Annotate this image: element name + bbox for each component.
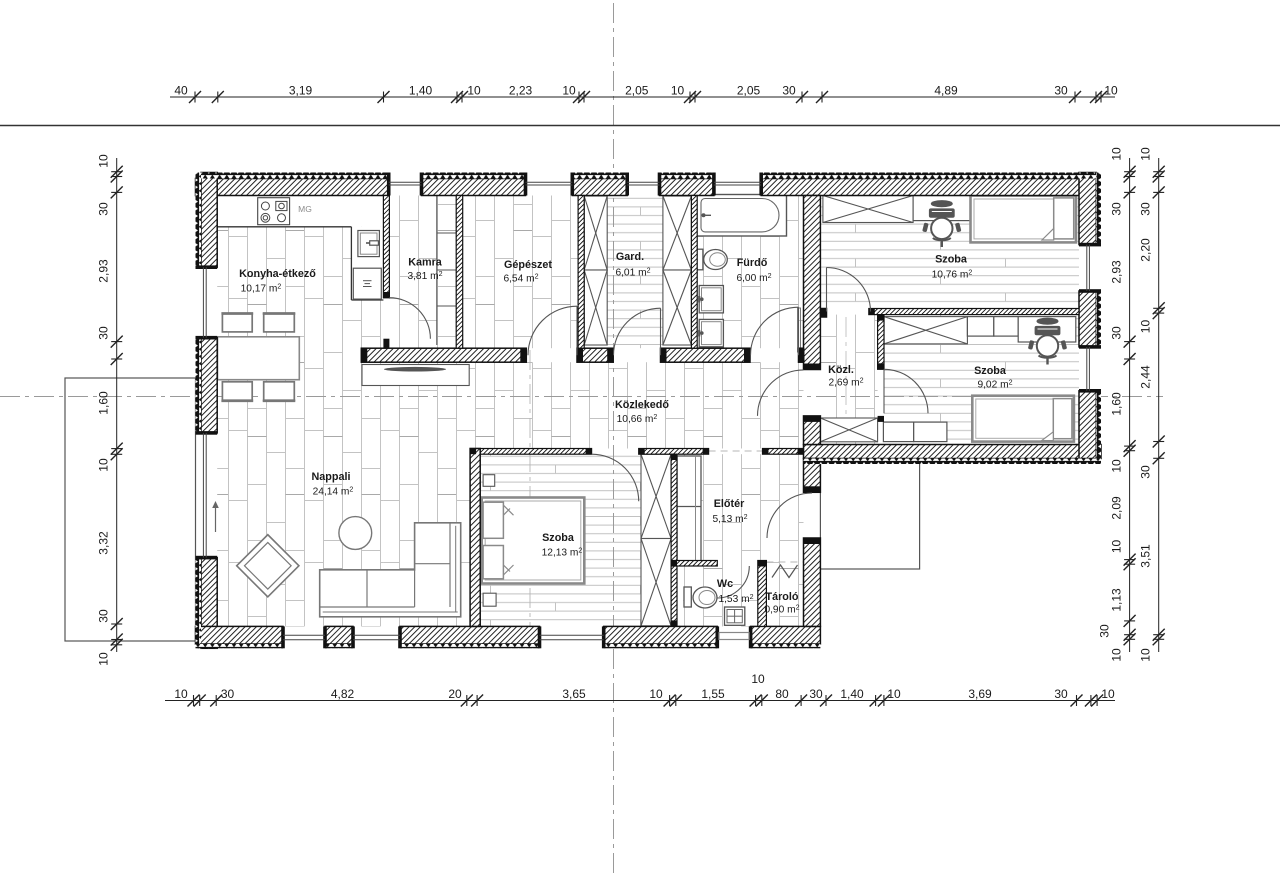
svg-text:6,00 m2: 6,00 m2 xyxy=(736,272,771,284)
svg-text:Wc: Wc xyxy=(717,578,733,590)
svg-text:Konyha-étkező: Konyha-étkező xyxy=(239,268,316,280)
svg-text:3,32: 3,32 xyxy=(97,531,111,555)
svg-text:10: 10 xyxy=(1109,648,1123,662)
svg-text:10: 10 xyxy=(467,83,481,97)
svg-text:30: 30 xyxy=(782,83,796,97)
svg-text:10: 10 xyxy=(1101,687,1115,701)
svg-text:2,93: 2,93 xyxy=(1109,260,1123,284)
svg-text:1,60: 1,60 xyxy=(1109,392,1123,416)
svg-text:Fürdő: Fürdő xyxy=(737,257,768,269)
svg-text:10,76 m2: 10,76 m2 xyxy=(932,269,973,281)
svg-text:30: 30 xyxy=(1109,202,1123,216)
svg-text:Közl.: Közl. xyxy=(828,364,854,376)
svg-text:30: 30 xyxy=(97,326,111,340)
svg-text:24,14 m2: 24,14 m2 xyxy=(313,486,354,498)
svg-text:Gépészet: Gépészet xyxy=(504,259,552,271)
svg-text:10: 10 xyxy=(671,83,685,97)
svg-text:9,02 m2: 9,02 m2 xyxy=(977,379,1012,391)
svg-text:40: 40 xyxy=(174,83,188,97)
svg-text:10: 10 xyxy=(174,687,188,701)
svg-text:Előtér: Előtér xyxy=(714,498,745,510)
svg-text:2,44: 2,44 xyxy=(1139,365,1153,389)
svg-text:6,01 m2: 6,01 m2 xyxy=(615,267,650,279)
svg-text:30: 30 xyxy=(1098,624,1112,638)
svg-text:10: 10 xyxy=(1104,83,1118,97)
svg-text:10: 10 xyxy=(887,687,901,701)
svg-text:Szoba: Szoba xyxy=(974,365,1007,377)
svg-text:10: 10 xyxy=(1139,648,1153,662)
svg-text:30: 30 xyxy=(1109,326,1123,340)
svg-text:10: 10 xyxy=(1109,147,1123,161)
svg-text:10: 10 xyxy=(97,154,111,168)
svg-text:Nappali: Nappali xyxy=(312,471,351,483)
svg-text:2,05: 2,05 xyxy=(625,83,649,97)
svg-text:Tároló: Tároló xyxy=(766,591,799,603)
svg-text:Szoba: Szoba xyxy=(542,532,575,544)
svg-text:12,13 m2: 12,13 m2 xyxy=(542,547,583,559)
svg-text:30: 30 xyxy=(1054,687,1068,701)
svg-text:1,13: 1,13 xyxy=(1109,588,1123,612)
svg-text:30: 30 xyxy=(97,202,111,216)
svg-text:6,54 m2: 6,54 m2 xyxy=(503,273,538,285)
svg-text:2,69 m2: 2,69 m2 xyxy=(828,377,863,389)
svg-text:Gard.: Gard. xyxy=(616,251,644,263)
svg-text:30: 30 xyxy=(1054,83,1068,97)
svg-text:2,93: 2,93 xyxy=(97,259,111,283)
svg-text:10: 10 xyxy=(1139,320,1153,334)
svg-text:80: 80 xyxy=(775,687,789,701)
svg-text:1,40: 1,40 xyxy=(409,83,433,97)
svg-text:3,19: 3,19 xyxy=(289,83,313,97)
svg-text:1,40: 1,40 xyxy=(840,687,864,701)
svg-text:10: 10 xyxy=(97,652,111,666)
svg-text:30: 30 xyxy=(97,609,111,623)
svg-text:3,65: 3,65 xyxy=(562,687,586,701)
svg-text:10: 10 xyxy=(1109,540,1123,554)
svg-text:4,82: 4,82 xyxy=(331,687,355,701)
svg-text:30: 30 xyxy=(221,687,235,701)
svg-text:3,69: 3,69 xyxy=(968,687,992,701)
svg-text:10: 10 xyxy=(97,458,111,472)
svg-text:3,81 m2: 3,81 m2 xyxy=(407,270,442,282)
svg-text:1,60: 1,60 xyxy=(97,391,111,415)
svg-text:1,55: 1,55 xyxy=(701,687,725,701)
svg-text:10: 10 xyxy=(649,687,663,701)
svg-text:1,53 m2: 1,53 m2 xyxy=(718,593,753,605)
svg-text:5,13 m2: 5,13 m2 xyxy=(712,513,747,525)
svg-text:Kamra: Kamra xyxy=(408,257,443,269)
svg-text:10: 10 xyxy=(751,672,765,686)
svg-text:Közlekedő: Közlekedő xyxy=(615,399,669,411)
svg-text:2,09: 2,09 xyxy=(1109,496,1123,520)
svg-text:30: 30 xyxy=(1139,202,1153,216)
svg-text:30: 30 xyxy=(1139,465,1153,479)
svg-text:10: 10 xyxy=(1109,459,1123,473)
svg-text:MG: MG xyxy=(298,204,312,214)
svg-text:2,23: 2,23 xyxy=(509,83,533,97)
svg-text:30: 30 xyxy=(809,687,823,701)
svg-text:20: 20 xyxy=(448,687,462,701)
svg-text:Szoba: Szoba xyxy=(935,254,968,266)
svg-text:2,20: 2,20 xyxy=(1139,238,1153,262)
svg-text:10,66 m2: 10,66 m2 xyxy=(617,413,658,425)
svg-text:10: 10 xyxy=(1139,147,1153,161)
svg-text:4,89: 4,89 xyxy=(934,83,958,97)
svg-text:2,05: 2,05 xyxy=(737,83,761,97)
svg-text:3,51: 3,51 xyxy=(1139,544,1153,568)
svg-text:0,90 m2: 0,90 m2 xyxy=(764,604,799,616)
svg-text:10,17 m2: 10,17 m2 xyxy=(241,283,282,295)
svg-text:10: 10 xyxy=(562,83,576,97)
